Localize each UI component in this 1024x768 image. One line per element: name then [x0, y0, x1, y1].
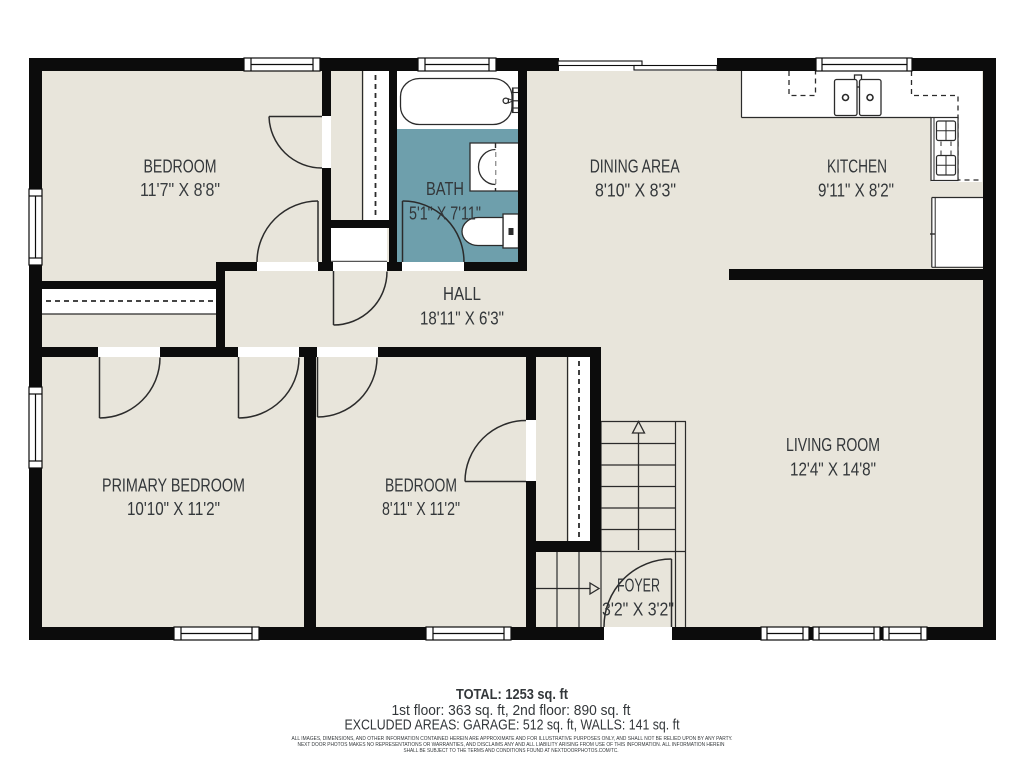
svg-text:9'11" X 8'2": 9'11" X 8'2" [818, 181, 894, 201]
svg-text:5'1" X 7'11": 5'1" X 7'11" [409, 204, 481, 224]
svg-text:EXCLUDED AREAS: GARAGE: 512 sq: EXCLUDED AREAS: GARAGE: 512 sq. ft, WALL… [345, 718, 680, 734]
svg-text:PRIMARY BEDROOM: PRIMARY BEDROOM [102, 476, 245, 496]
svg-text:12'4" X 14'8": 12'4" X 14'8" [790, 460, 876, 480]
svg-text:KITCHEN: KITCHEN [827, 156, 887, 176]
svg-text:11'7" X 8'8": 11'7" X 8'8" [140, 180, 220, 200]
svg-text:DINING AREA: DINING AREA [590, 156, 680, 176]
svg-text:FOYER: FOYER [617, 576, 660, 596]
svg-text:SHALL BE SUBJECT TO THE TERMS: SHALL BE SUBJECT TO THE TERMS AND CONDIT… [404, 748, 619, 754]
svg-text:3'2" X 3'2": 3'2" X 3'2" [602, 600, 674, 620]
svg-text:BATH: BATH [426, 179, 464, 199]
svg-text:18'11" X 6'3": 18'11" X 6'3" [420, 309, 504, 329]
svg-text:10'10" X 11'2": 10'10" X 11'2" [127, 499, 220, 519]
svg-text:8'10" X 8'3": 8'10" X 8'3" [595, 181, 676, 201]
svg-text:TOTAL: 1253 sq. ft: TOTAL: 1253 sq. ft [456, 687, 568, 703]
svg-text:BEDROOM: BEDROOM [144, 157, 217, 177]
svg-text:HALL: HALL [443, 284, 481, 304]
svg-text:BEDROOM: BEDROOM [385, 476, 457, 496]
svg-text:8'11" X 11'2": 8'11" X 11'2" [382, 499, 460, 519]
svg-text:LIVING ROOM: LIVING ROOM [786, 435, 880, 455]
